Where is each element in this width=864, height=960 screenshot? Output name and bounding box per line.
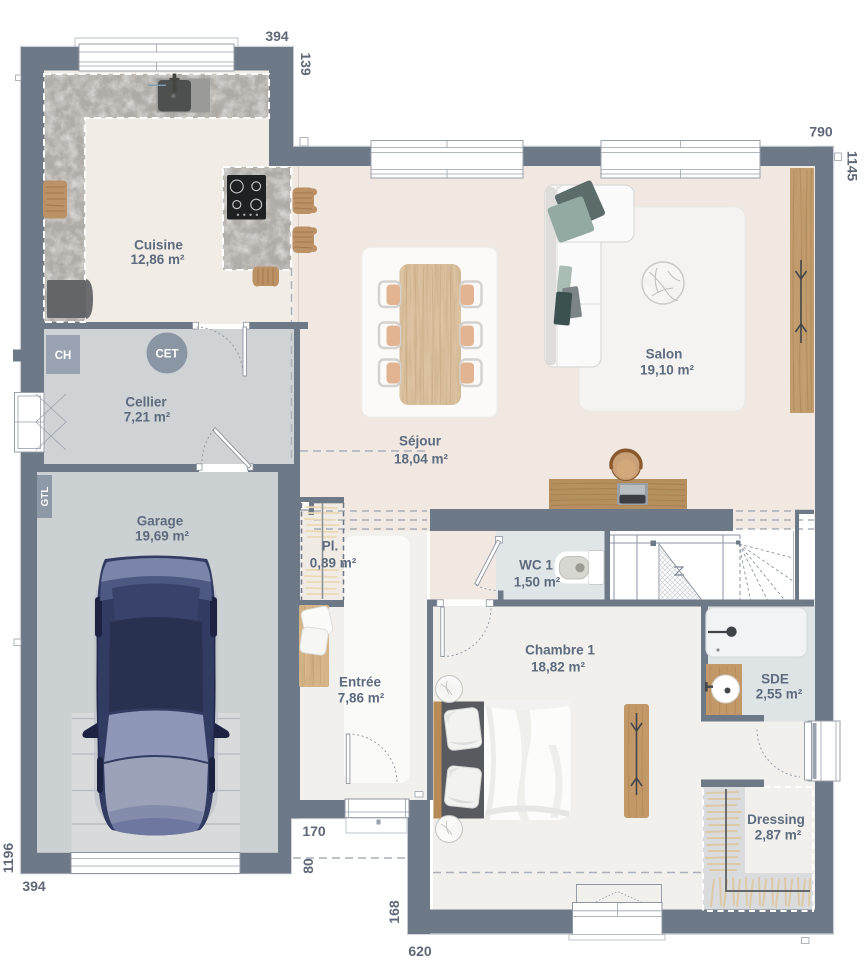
svg-text:790: 790 [809, 124, 833, 140]
svg-text:19,10 m²: 19,10 m² [640, 363, 695, 378]
svg-text:18,82 m²: 18,82 m² [531, 660, 586, 675]
svg-text:168: 168 [386, 900, 402, 924]
svg-text:7,86 m²: 7,86 m² [338, 691, 385, 706]
svg-text:Chambre 1: Chambre 1 [525, 643, 595, 658]
svg-text:170: 170 [302, 823, 326, 839]
svg-text:620: 620 [408, 943, 432, 959]
svg-text:Cellier: Cellier [125, 395, 167, 410]
svg-text:1,50 m²: 1,50 m² [514, 575, 561, 590]
svg-text:394: 394 [22, 878, 46, 894]
svg-text:139: 139 [298, 52, 314, 76]
svg-text:80: 80 [300, 858, 316, 874]
svg-text:Garage: Garage [137, 514, 184, 529]
svg-text:CH: CH [55, 350, 72, 362]
svg-text:Séjour: Séjour [399, 434, 442, 449]
svg-text:1145: 1145 [845, 151, 861, 182]
svg-text:Entrée: Entrée [339, 675, 382, 690]
svg-text:12,86 m²: 12,86 m² [130, 252, 185, 267]
svg-text:18,04 m²: 18,04 m² [394, 452, 449, 467]
svg-text:2,55 m²: 2,55 m² [756, 687, 803, 702]
svg-text:2,87 m²: 2,87 m² [755, 828, 802, 843]
svg-text:Cuisine: Cuisine [134, 237, 183, 252]
svg-text:CET: CET [156, 349, 179, 361]
svg-text:7,21 m²: 7,21 m² [124, 410, 171, 425]
svg-text:SDE: SDE [761, 672, 789, 687]
svg-text:1196: 1196 [0, 843, 16, 874]
svg-text:Pl.: Pl. [322, 539, 339, 554]
svg-text:394: 394 [265, 28, 289, 44]
svg-text:WC 1: WC 1 [519, 558, 553, 573]
svg-text:0,89 m²: 0,89 m² [310, 556, 357, 571]
svg-text:19,69 m²: 19,69 m² [135, 529, 190, 544]
svg-text:Salon: Salon [646, 347, 683, 362]
svg-text:Dressing: Dressing [747, 812, 805, 827]
svg-text:GTL: GTL [40, 487, 51, 507]
